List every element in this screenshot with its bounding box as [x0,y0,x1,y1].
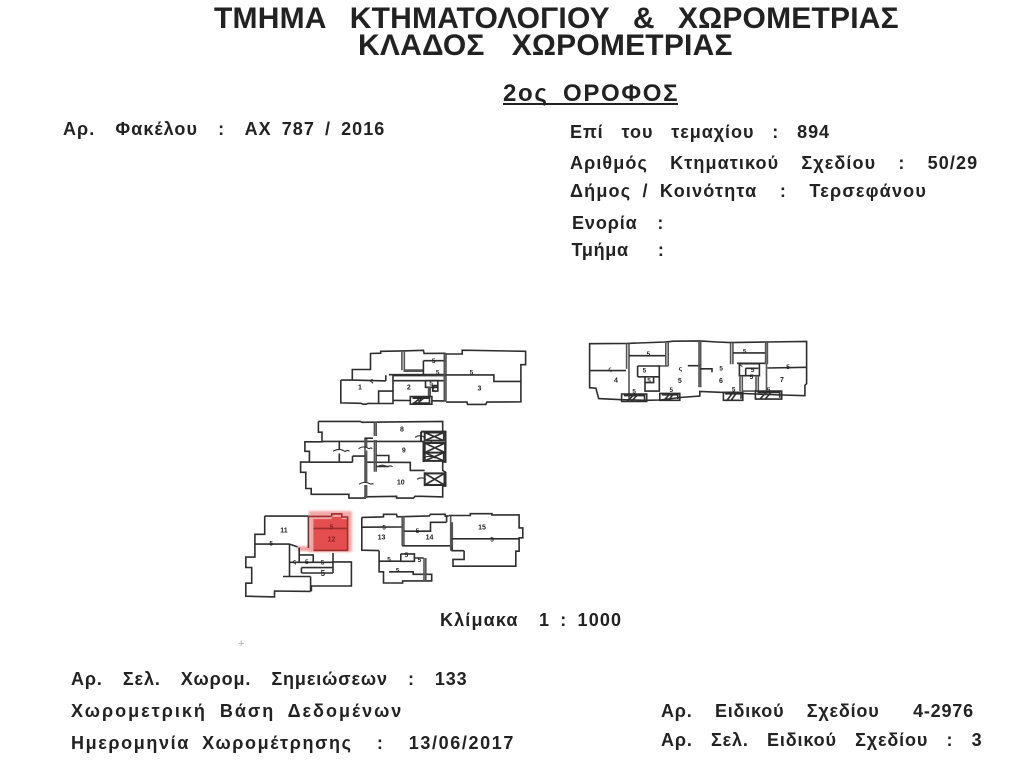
svg-text:5: 5 [396,568,400,575]
svg-text:5: 5 [321,559,325,566]
svg-text:5: 5 [436,370,440,377]
svg-text:5: 5 [678,378,682,385]
svg-text:5: 5 [786,364,790,371]
svg-text:5: 5 [418,557,422,564]
svg-text:3: 3 [478,386,482,393]
svg-text:1: 1 [358,385,362,392]
svg-text:5: 5 [330,525,334,532]
svg-text:10: 10 [397,479,405,486]
svg-text:5: 5 [418,396,422,403]
svg-text:5: 5 [470,370,474,377]
svg-text:9: 9 [402,448,406,455]
svg-text:6: 6 [719,378,723,385]
svg-text:ς: ς [739,361,743,368]
svg-text:5: 5 [647,378,651,385]
svg-text:ς: ς [608,366,612,373]
svg-text:12: 12 [328,537,336,544]
svg-text:13: 13 [378,535,386,542]
svg-text:5: 5 [767,387,771,394]
svg-text:5: 5 [405,552,409,559]
svg-text:5: 5 [670,387,674,394]
svg-text:7: 7 [780,377,784,384]
svg-text:5: 5 [490,536,494,543]
svg-text:5: 5 [750,374,754,381]
svg-text:4: 4 [614,378,618,385]
svg-text:14: 14 [426,535,434,542]
svg-text:8: 8 [400,426,404,433]
svg-text:15: 15 [478,525,486,532]
svg-text:5: 5 [269,541,273,548]
svg-text:5: 5 [719,365,723,372]
svg-text:11: 11 [280,528,288,535]
svg-text:5: 5 [647,351,651,358]
svg-text:5: 5 [321,569,326,578]
svg-text:5: 5 [643,368,647,375]
svg-text:5: 5 [732,387,736,394]
svg-text:5: 5 [416,528,420,535]
svg-text:5: 5 [632,389,636,396]
svg-text:ς: ς [679,366,683,373]
svg-text:5: 5 [382,525,386,532]
svg-text:5: 5 [743,349,747,356]
svg-text:5: 5 [305,559,309,566]
svg-text:2: 2 [407,385,411,392]
svg-text:5: 5 [387,557,391,564]
svg-text:5: 5 [432,358,436,365]
